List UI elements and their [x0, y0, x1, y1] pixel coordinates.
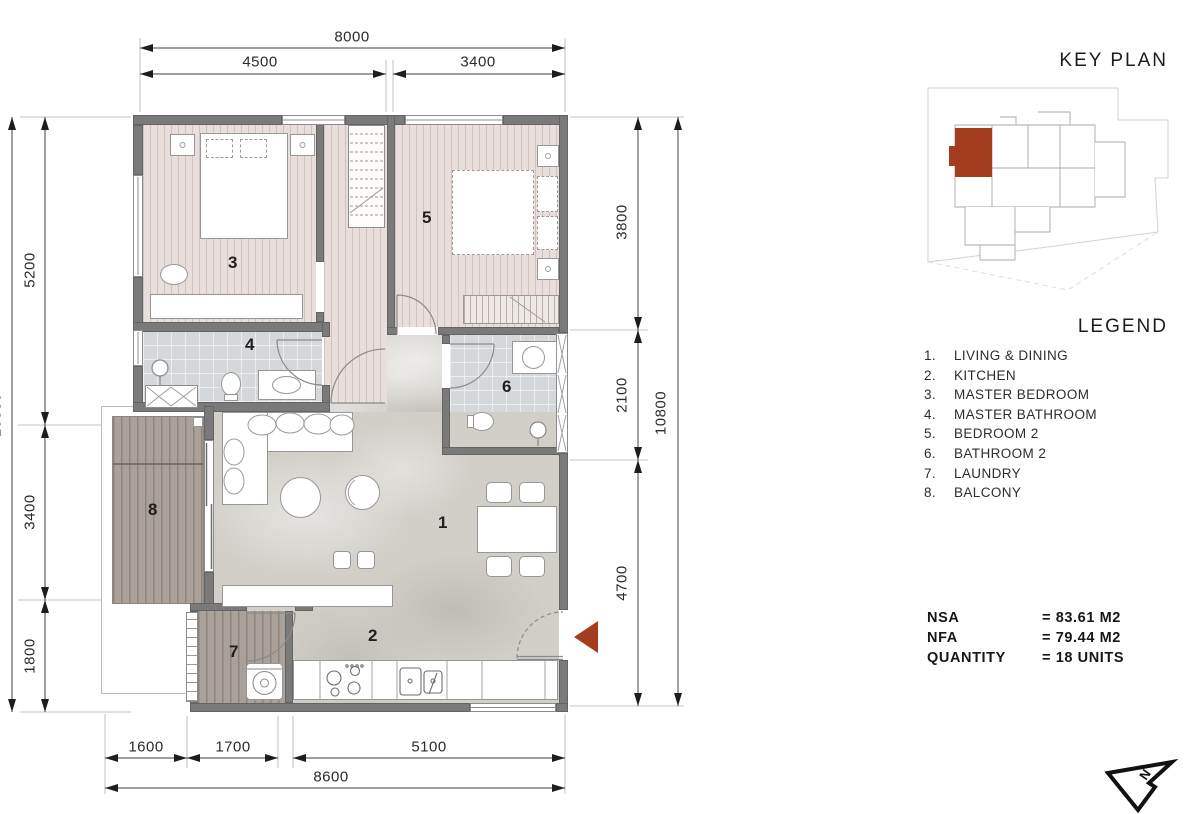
key-plan-unit-highlight: [949, 128, 992, 177]
dim-right-total: 10800: [653, 391, 670, 435]
dining-chair: [486, 556, 512, 577]
shaft: [556, 333, 568, 453]
legend-item-num: 4.: [924, 407, 954, 422]
window: [133, 330, 143, 366]
stat-label: NSA: [927, 610, 1042, 626]
wall: [316, 312, 324, 322]
wall: [556, 703, 568, 712]
wall: [316, 115, 324, 262]
wall: [322, 322, 330, 337]
wall: [133, 322, 330, 332]
dim-bottom-total: 8600: [313, 769, 348, 786]
stat-row: NFA = 79.44 M2: [927, 630, 1177, 646]
dresser: [150, 294, 303, 319]
room-label-kitchen: 2: [368, 626, 378, 646]
unit-stats: NSA = 83.61 M2 NFA = 79.44 M2 QUANTITY =…: [927, 610, 1177, 670]
toilet-tank: [224, 394, 238, 401]
sofa-chaise: [222, 412, 268, 505]
dim-right-seg3: 4700: [614, 565, 631, 600]
window: [282, 115, 345, 125]
legend-item: 4. MASTER BATHROOM: [924, 407, 1174, 422]
wall: [285, 611, 293, 703]
room-label-living: 1: [438, 513, 448, 533]
stat-row: QUANTITY = 18 UNITS: [927, 650, 1177, 666]
key-plan-title: KEY PLAN: [940, 50, 1168, 72]
stat-label: NFA: [927, 630, 1042, 646]
wall: [442, 335, 450, 344]
legend-item-label: BEDROOM 2: [954, 426, 1039, 441]
window: [470, 703, 556, 712]
legend-item-num: 5.: [924, 426, 954, 441]
wall: [133, 115, 282, 125]
legend-item-label: BALCONY: [954, 485, 1021, 500]
sink: [272, 376, 301, 394]
room-label-balcony: 8: [148, 500, 158, 520]
legend-item-label: LAUNDRY: [954, 466, 1021, 481]
wall: [190, 703, 470, 712]
toilet: [221, 372, 241, 396]
washing-machine: [246, 663, 283, 700]
wall: [442, 447, 559, 455]
wall: [133, 125, 143, 175]
legend-item-num: 2.: [924, 368, 954, 383]
stairs: [348, 125, 385, 228]
dim-bottom-seg1: 1600: [128, 739, 163, 756]
dim-right-seg1: 3800: [614, 204, 631, 239]
stat-value: = 79.44 M2: [1042, 630, 1121, 646]
wall: [559, 115, 568, 333]
dim-left-seg3: 1800: [22, 638, 39, 673]
nightstand: [290, 134, 315, 156]
stat-value: = 83.61 M2: [1042, 610, 1121, 626]
sliding-door: [204, 440, 214, 572]
armchair: [345, 475, 380, 510]
dining-chair: [519, 556, 545, 577]
room-label-master-bedroom: 3: [228, 253, 238, 273]
dim-left-total: 10800: [0, 393, 5, 437]
legend-item-label: BATHROOM 2: [954, 446, 1046, 461]
chair: [160, 264, 188, 285]
room-label-bedroom2: 5: [422, 208, 432, 228]
legend-item: 1. LIVING & DINING: [924, 348, 1174, 363]
north-arrow-icon: N: [1102, 757, 1180, 814]
wall: [387, 327, 397, 335]
balcony-fixture: [193, 417, 203, 427]
room-label-master-bathroom: 4: [245, 335, 255, 355]
drying-rack: [186, 612, 198, 702]
nightstand: [537, 258, 559, 280]
legend-item-num: 6.: [924, 446, 954, 461]
floorplan-sheet: 1 2 3 4 5 6 7 8 8000 4500 3400 5200 3400…: [0, 0, 1200, 814]
pillow: [537, 176, 558, 212]
bed: [452, 170, 534, 255]
pillow: [240, 139, 267, 158]
dining-chair: [486, 482, 512, 503]
legend-item-num: 1.: [924, 348, 954, 363]
toilet-tank: [467, 415, 474, 428]
key-plan-drawing: [920, 82, 1178, 297]
stat-value: = 18 UNITS: [1042, 650, 1124, 666]
wall: [559, 453, 568, 610]
dim-top-seg1: 4500: [242, 54, 277, 71]
legend-item-label: KITCHEN: [954, 368, 1016, 383]
stool: [357, 551, 375, 569]
window: [405, 115, 503, 125]
entry-arrow: [574, 621, 598, 653]
dim-right-seg2: 2100: [614, 377, 631, 412]
legend-item-label: MASTER BATHROOM: [954, 407, 1097, 422]
legend-item-num: 7.: [924, 466, 954, 481]
stat-row: NSA = 83.61 M2: [927, 610, 1177, 626]
coffee-table: [280, 477, 321, 518]
nightstand: [537, 145, 559, 167]
wall: [387, 115, 395, 335]
legend-item-label: MASTER BEDROOM: [954, 387, 1089, 402]
wall: [438, 327, 559, 335]
stool: [333, 551, 351, 569]
legend-item: 3. MASTER BEDROOM: [924, 387, 1174, 402]
legend-item-num: 3.: [924, 387, 954, 402]
dim-left-seg2: 3400: [22, 494, 39, 529]
dim-bottom-seg3: 5100: [411, 739, 446, 756]
dining-table: [477, 506, 557, 553]
wall: [345, 115, 405, 125]
wall: [442, 388, 450, 455]
legend-item: 5. BEDROOM 2: [924, 426, 1174, 441]
ac-ledge: [145, 385, 198, 408]
window: [133, 175, 143, 277]
legend-item: 6. BATHROOM 2: [924, 446, 1174, 461]
wardrobe: [463, 295, 559, 324]
stat-label: QUANTITY: [927, 650, 1042, 666]
legend-title: LEGEND: [940, 316, 1168, 338]
legend-item: 2. KITCHEN: [924, 368, 1174, 383]
dim-bottom-seg2: 1700: [215, 739, 250, 756]
tv-bench: [222, 585, 393, 607]
wall: [204, 572, 214, 604]
dim-left-seg1: 5200: [22, 252, 39, 287]
dim-top-total: 8000: [334, 29, 369, 46]
legend-item: 7. LAUNDRY: [924, 466, 1174, 481]
legend-item-num: 8.: [924, 485, 954, 500]
room-balcony-floor: [112, 416, 204, 604]
kitchen-counter: [293, 660, 558, 700]
sink: [522, 346, 545, 369]
pillow: [537, 216, 558, 250]
nightstand: [170, 134, 195, 156]
svg-text:N: N: [1136, 766, 1154, 782]
dining-chair: [519, 482, 545, 503]
legend-list: 1. LIVING & DINING 2. KITCHEN 3. MASTER …: [924, 348, 1174, 505]
legend-item: 8. BALCONY: [924, 485, 1174, 500]
room-label-laundry: 7: [229, 642, 239, 662]
room-label-bathroom2: 6: [502, 377, 512, 397]
dim-top-seg2: 3400: [460, 54, 495, 71]
pillow: [206, 139, 233, 158]
wall: [204, 406, 214, 440]
legend-item-label: LIVING & DINING: [954, 348, 1068, 363]
